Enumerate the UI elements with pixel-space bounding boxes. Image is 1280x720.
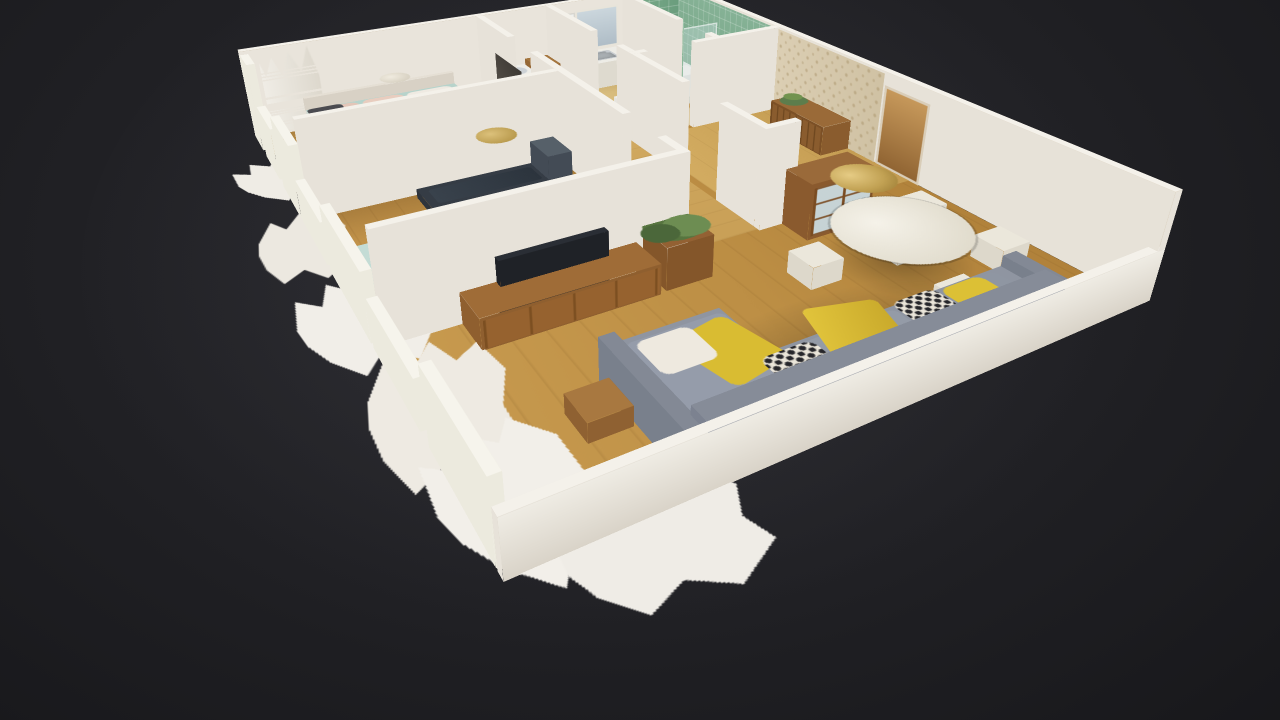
perspective-layer: [0, 0, 1280, 720]
dollhouse-model[interactable]: [255, 56, 1149, 582]
viewer-canvas[interactable]: [0, 0, 1280, 720]
